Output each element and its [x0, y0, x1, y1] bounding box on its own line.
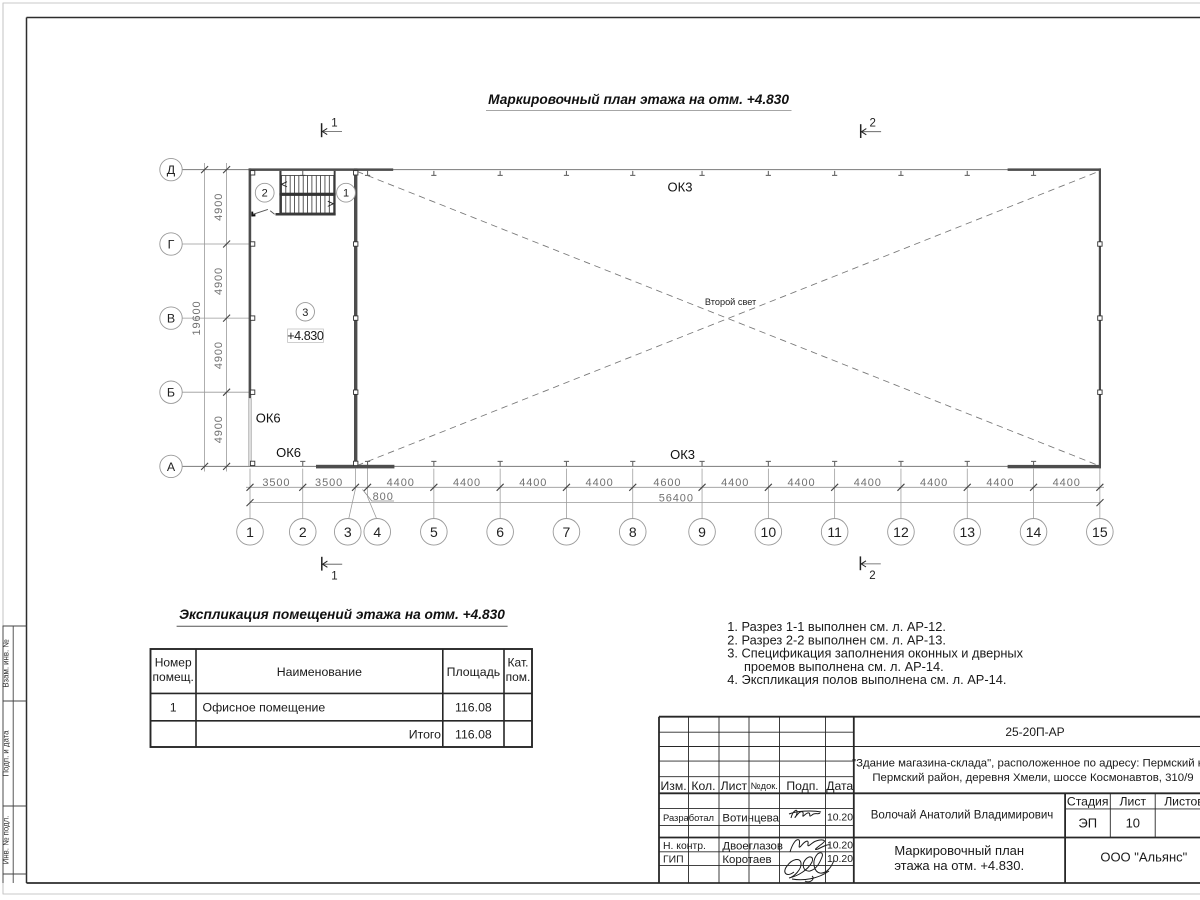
svg-text:4400: 4400: [1053, 477, 1081, 489]
svg-text:Экспликация помещений этажа на: Экспликация помещений этажа на отм. +4.8…: [179, 607, 505, 622]
svg-text:116.08: 116.08: [455, 701, 492, 715]
svg-text:8: 8: [629, 524, 637, 540]
svg-text:6: 6: [496, 524, 504, 540]
svg-text:ЭП: ЭП: [1078, 816, 1097, 831]
svg-text:10.20: 10.20: [827, 841, 853, 852]
svg-text:ОК3: ОК3: [668, 180, 693, 195]
svg-text:1: 1: [246, 524, 254, 540]
svg-text:Наименование: Наименование: [277, 665, 362, 679]
svg-text:4400: 4400: [519, 477, 547, 489]
svg-text:Стадия: Стадия: [1067, 794, 1109, 808]
svg-text:ООО "Альянс": ООО "Альянс": [1100, 849, 1187, 864]
svg-text:10.20: 10.20: [827, 813, 853, 824]
svg-text:Волочай Анатолий Владимирович: Волочай Анатолий Владимирович: [871, 810, 1054, 822]
svg-text:9: 9: [698, 524, 706, 540]
svg-text:пом.: пом.: [506, 670, 531, 684]
svg-text:Подп. и дата: Подп. и дата: [2, 730, 11, 777]
svg-text:ОК6: ОК6: [256, 411, 281, 426]
svg-text:Площадь: Площадь: [447, 665, 501, 679]
svg-text:Лист: Лист: [1120, 794, 1147, 808]
svg-text:Изм.: Изм.: [661, 779, 687, 793]
svg-text:Кол.: Кол.: [691, 779, 715, 793]
svg-text:116.08: 116.08: [455, 727, 492, 741]
svg-text:Разработал: Разработал: [663, 812, 714, 823]
svg-text:4: 4: [373, 524, 381, 540]
svg-text:1: 1: [331, 570, 337, 582]
svg-text:Маркировочный план этажа на от: Маркировочный план этажа на отм. +4.830: [488, 92, 789, 107]
svg-text:3500: 3500: [315, 477, 343, 489]
svg-text:ОК6: ОК6: [276, 445, 301, 460]
svg-text:14: 14: [1026, 524, 1042, 540]
svg-text:15: 15: [1092, 524, 1108, 540]
svg-text:2: 2: [869, 118, 875, 130]
svg-text:13: 13: [959, 524, 975, 540]
svg-text:Кат.: Кат.: [508, 656, 529, 670]
svg-text:4400: 4400: [920, 477, 948, 489]
svg-text:4400: 4400: [986, 477, 1014, 489]
svg-text:4. Экспликация полов выполнена: 4. Экспликация полов выполнена см. л. АР…: [727, 672, 1006, 687]
svg-text:Маркировочный план: Маркировочный план: [894, 843, 1024, 858]
svg-text:помещ.: помещ.: [153, 670, 194, 684]
svg-text:Инв. № подл.: Инв. № подл.: [2, 816, 11, 865]
svg-text:Н. контр.: Н. контр.: [663, 841, 706, 852]
svg-text:А: А: [167, 460, 176, 474]
svg-text:Двоеглазов: Двоеглазов: [722, 840, 783, 852]
svg-text:№док.: №док.: [751, 781, 778, 791]
svg-text:Номер: Номер: [155, 656, 192, 670]
svg-text:Листов: Листов: [1164, 794, 1200, 808]
svg-text:4900: 4900: [213, 267, 225, 295]
svg-text:2: 2: [262, 188, 268, 200]
svg-text:4400: 4400: [721, 477, 749, 489]
svg-text:4400: 4400: [854, 477, 882, 489]
svg-text:1: 1: [331, 117, 337, 129]
svg-text:Б: Б: [167, 386, 175, 400]
svg-text:4900: 4900: [213, 415, 225, 443]
svg-text:1: 1: [170, 701, 177, 715]
svg-text:"Здание магазина-склада", расп: "Здание магазина-склада", расположенное …: [852, 758, 1200, 770]
svg-text:Подп.: Подп.: [786, 779, 818, 793]
svg-text:этажа на отм. +4.830.: этажа на отм. +4.830.: [894, 858, 1024, 873]
svg-text:800: 800: [373, 491, 394, 503]
svg-text:10: 10: [1126, 816, 1140, 831]
svg-text:Итого: Итого: [409, 727, 441, 741]
svg-text:4900: 4900: [213, 341, 225, 369]
svg-text:ГИП: ГИП: [663, 855, 684, 866]
svg-text:25-20П-АР: 25-20П-АР: [1005, 725, 1064, 739]
svg-text:Пермский район, деревня Хмели,: Пермский район, деревня Хмели, шоссе Кос…: [872, 772, 1193, 784]
svg-text:4400: 4400: [586, 477, 614, 489]
svg-text:2: 2: [299, 524, 307, 540]
svg-text:12: 12: [893, 524, 909, 540]
svg-text:4900: 4900: [213, 193, 225, 221]
svg-text:4600: 4600: [653, 477, 681, 489]
svg-text:10: 10: [761, 524, 777, 540]
svg-text:+4.830: +4.830: [287, 329, 324, 343]
svg-text:4400: 4400: [787, 477, 815, 489]
svg-text:4400: 4400: [387, 477, 415, 489]
svg-text:3: 3: [344, 524, 352, 540]
svg-text:Д: Д: [167, 163, 176, 177]
svg-text:Второй свет: Второй свет: [705, 297, 757, 307]
svg-text:Взам. инв. №: Взам. инв. №: [2, 639, 11, 687]
svg-text:3500: 3500: [262, 477, 290, 489]
svg-text:Коротаев: Коротаев: [722, 854, 771, 866]
svg-text:Г: Г: [168, 237, 175, 251]
svg-text:3: 3: [302, 307, 308, 319]
svg-text:5: 5: [430, 524, 438, 540]
svg-text:1: 1: [343, 188, 349, 200]
svg-text:11: 11: [827, 524, 842, 540]
svg-text:19600: 19600: [191, 300, 203, 335]
svg-text:56400: 56400: [659, 492, 694, 504]
svg-text:Офисное помещение: Офисное помещение: [203, 701, 326, 715]
svg-text:В: В: [167, 312, 175, 326]
svg-text:4400: 4400: [453, 477, 481, 489]
svg-text:Вотинцева: Вотинцева: [722, 812, 779, 824]
svg-text:ОК3: ОК3: [670, 447, 695, 462]
svg-text:2: 2: [869, 570, 875, 582]
svg-text:Дата: Дата: [826, 779, 853, 793]
svg-text:10.20: 10.20: [827, 854, 853, 865]
svg-text:7: 7: [563, 524, 571, 540]
svg-text:Лист: Лист: [721, 779, 748, 793]
